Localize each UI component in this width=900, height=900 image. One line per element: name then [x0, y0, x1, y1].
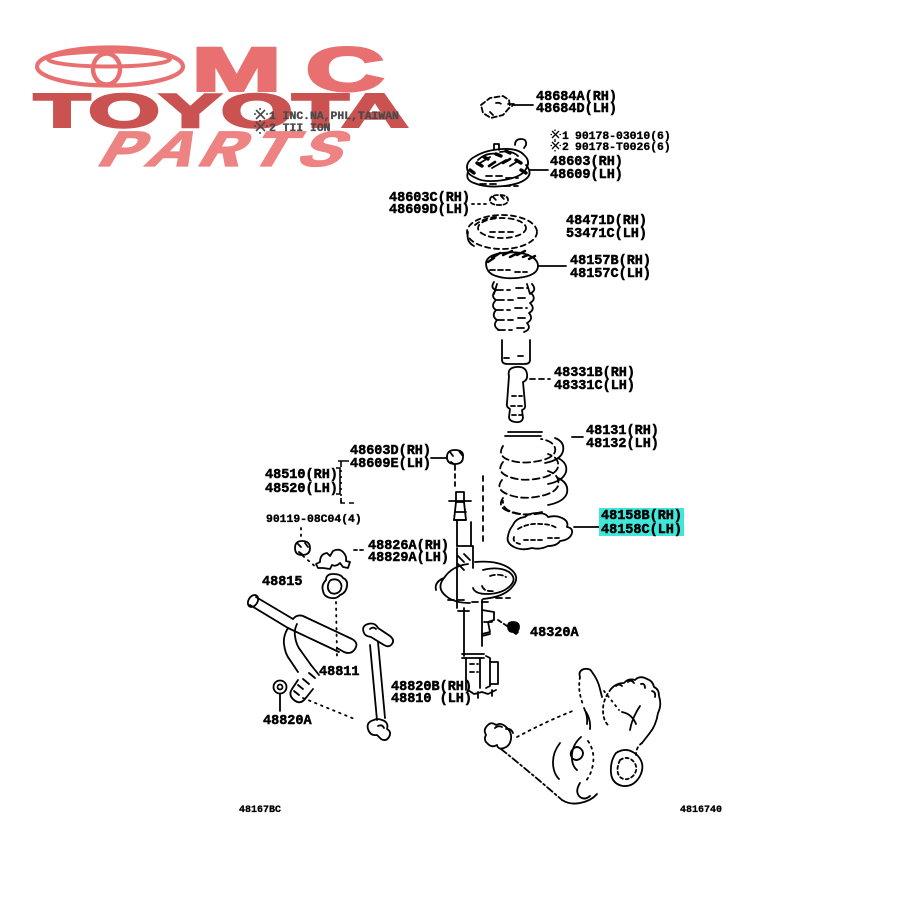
svg-text:48609(LH): 48609(LH) — [550, 168, 623, 183]
svg-text:48815: 48815 — [262, 575, 303, 590]
svg-text:90178-T0026(6): 90178-T0026(6) — [575, 142, 671, 154]
svg-text:48520(LH): 48520(LH) — [265, 482, 338, 497]
svg-text:48132(LH): 48132(LH) — [586, 437, 659, 452]
svg-text:48158C(LH): 48158C(LH) — [601, 523, 682, 538]
svg-text:48810 (LH): 48810 (LH) — [391, 692, 472, 707]
svg-text:48331C(LH): 48331C(LH) — [554, 379, 635, 394]
svg-text:4816740: 4816740 — [680, 805, 722, 816]
svg-text:1 INC.NA,PHL,TAIWAN: 1 INC.NA,PHL,TAIWAN — [269, 111, 399, 123]
svg-text:2: 2 — [562, 142, 569, 154]
svg-text:48158B(RH): 48158B(RH) — [601, 509, 682, 524]
svg-text:48684D(LH): 48684D(LH) — [536, 102, 617, 117]
svg-text:48609D(LH): 48609D(LH) — [389, 203, 470, 218]
svg-text:90119-08C04(4): 90119-08C04(4) — [266, 514, 362, 526]
svg-text:2 TII ION: 2 TII ION — [269, 123, 331, 135]
svg-text:48320A: 48320A — [530, 626, 580, 641]
svg-text:48510(RH): 48510(RH) — [265, 468, 338, 483]
svg-text:53471C(LH): 53471C(LH) — [566, 227, 647, 242]
svg-text:48157C(LH): 48157C(LH) — [570, 267, 651, 282]
svg-text:48811: 48811 — [319, 665, 360, 680]
svg-text:48609E(LH): 48609E(LH) — [350, 457, 431, 472]
svg-text:48167BC: 48167BC — [239, 805, 281, 816]
svg-text:48820A: 48820A — [263, 714, 313, 729]
svg-text:48829A(LH): 48829A(LH) — [368, 551, 449, 566]
